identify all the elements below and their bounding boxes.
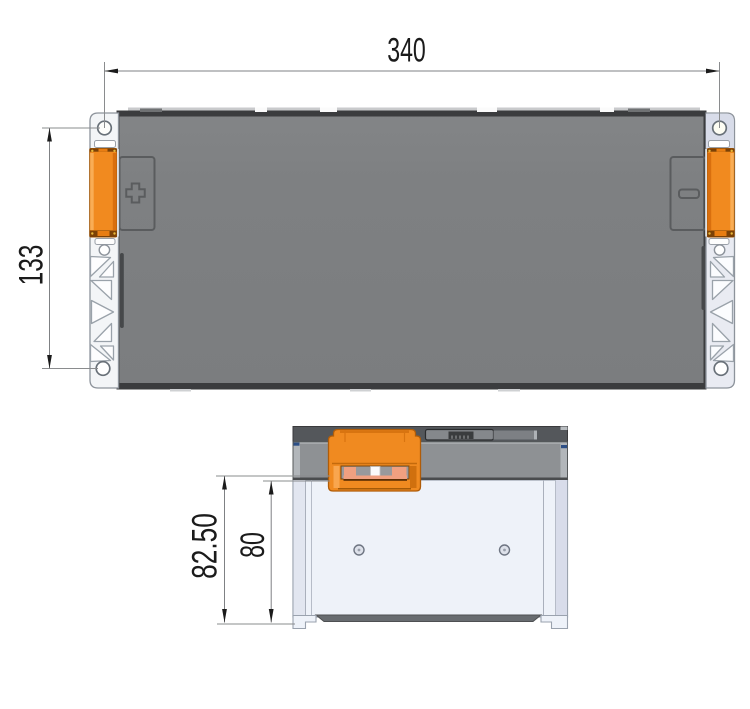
svg-text:340: 340 <box>387 32 426 69</box>
svg-text:82.50: 82.50 <box>185 513 225 579</box>
svg-text:80: 80 <box>235 532 272 558</box>
svg-text:133: 133 <box>13 245 51 286</box>
